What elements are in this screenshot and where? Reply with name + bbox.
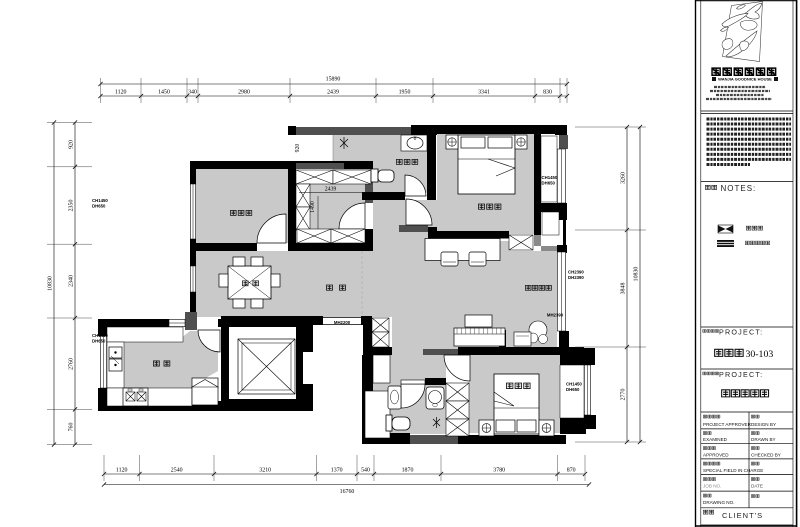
- svg-text:CH1450: CH1450: [92, 333, 108, 338]
- svg-text:15890: 15890: [326, 77, 341, 83]
- svg-text:2760: 2760: [69, 358, 75, 370]
- svg-text:CH1450: CH1450: [566, 382, 582, 387]
- svg-text:APPROVED: APPROVED: [703, 452, 729, 457]
- svg-text:1870: 1870: [402, 468, 414, 474]
- svg-text:MH2200: MH2200: [334, 320, 351, 325]
- svg-text:1450: 1450: [158, 90, 170, 96]
- svg-text:CHECKED BY: CHECKED BY: [751, 452, 781, 457]
- svg-text:2350: 2350: [69, 200, 75, 212]
- svg-text:MH2390: MH2390: [547, 313, 564, 318]
- svg-text:JOB NO.: JOB NO.: [703, 484, 721, 489]
- svg-text:DRAWING NO.: DRAWING NO.: [703, 500, 734, 505]
- svg-text:DH2390: DH2390: [568, 275, 584, 280]
- svg-text:870: 870: [567, 468, 576, 474]
- svg-text:830: 830: [543, 90, 552, 96]
- svg-text:DH650: DH650: [92, 204, 106, 209]
- svg-text:920: 920: [69, 140, 75, 149]
- svg-text:DH650: DH650: [566, 387, 580, 392]
- svg-text:3848: 3848: [621, 283, 627, 295]
- svg-text:WANJIA GOODNICE HOUSE: WANJIA GOODNICE HOUSE: [718, 77, 772, 82]
- svg-text:PROJECT:: PROJECT:: [719, 328, 763, 337]
- svg-text:16760: 16760: [340, 489, 355, 495]
- svg-text:DRAWN BY: DRAWN BY: [751, 437, 776, 442]
- svg-text:DH650: DH650: [92, 339, 106, 344]
- svg-text:2770: 2770: [621, 389, 627, 401]
- svg-text:1120: 1120: [116, 468, 128, 474]
- svg-text:SPECIAL FIELD IN CHARGE: SPECIAL FIELD IN CHARGE: [703, 468, 763, 473]
- svg-text:CH2390: CH2390: [568, 270, 584, 275]
- svg-text:DH650: DH650: [542, 181, 556, 186]
- svg-text:540: 540: [361, 468, 370, 474]
- svg-text:DESIGN BY: DESIGN BY: [751, 422, 776, 427]
- svg-text:1950: 1950: [399, 90, 411, 96]
- svg-text:1120: 1120: [115, 90, 127, 96]
- svg-text:NOTES:: NOTES:: [721, 184, 757, 193]
- svg-text:2340: 2340: [69, 275, 75, 287]
- svg-text:2540: 2540: [171, 468, 183, 474]
- svg-text:CLIENT'S: CLIENT'S: [722, 511, 763, 520]
- svg-text:2980: 2980: [238, 90, 250, 96]
- svg-text:CH1450: CH1450: [92, 198, 108, 203]
- svg-text:EXAMINED: EXAMINED: [703, 437, 728, 442]
- svg-text:3210: 3210: [259, 468, 271, 474]
- svg-text:DATE: DATE: [751, 484, 763, 489]
- svg-text:1490: 1490: [310, 201, 316, 213]
- svg-text:10830: 10830: [48, 276, 54, 291]
- svg-text:3260: 3260: [621, 172, 627, 184]
- svg-text:PROJECT:: PROJECT:: [719, 370, 763, 379]
- svg-text:1370: 1370: [331, 468, 343, 474]
- svg-text:760: 760: [69, 423, 75, 432]
- svg-text:2439: 2439: [327, 90, 339, 96]
- svg-text:340: 340: [188, 90, 197, 96]
- svg-text:PROJECT APPROVER: PROJECT APPROVER: [703, 422, 752, 427]
- svg-text:10830: 10830: [634, 267, 640, 282]
- svg-text:3341: 3341: [478, 90, 490, 96]
- svg-text:30-103: 30-103: [746, 349, 774, 360]
- svg-text:2439: 2439: [325, 187, 337, 193]
- svg-text:CH1450: CH1450: [542, 175, 558, 180]
- svg-text:3780: 3780: [493, 468, 505, 474]
- svg-text:920: 920: [295, 144, 301, 153]
